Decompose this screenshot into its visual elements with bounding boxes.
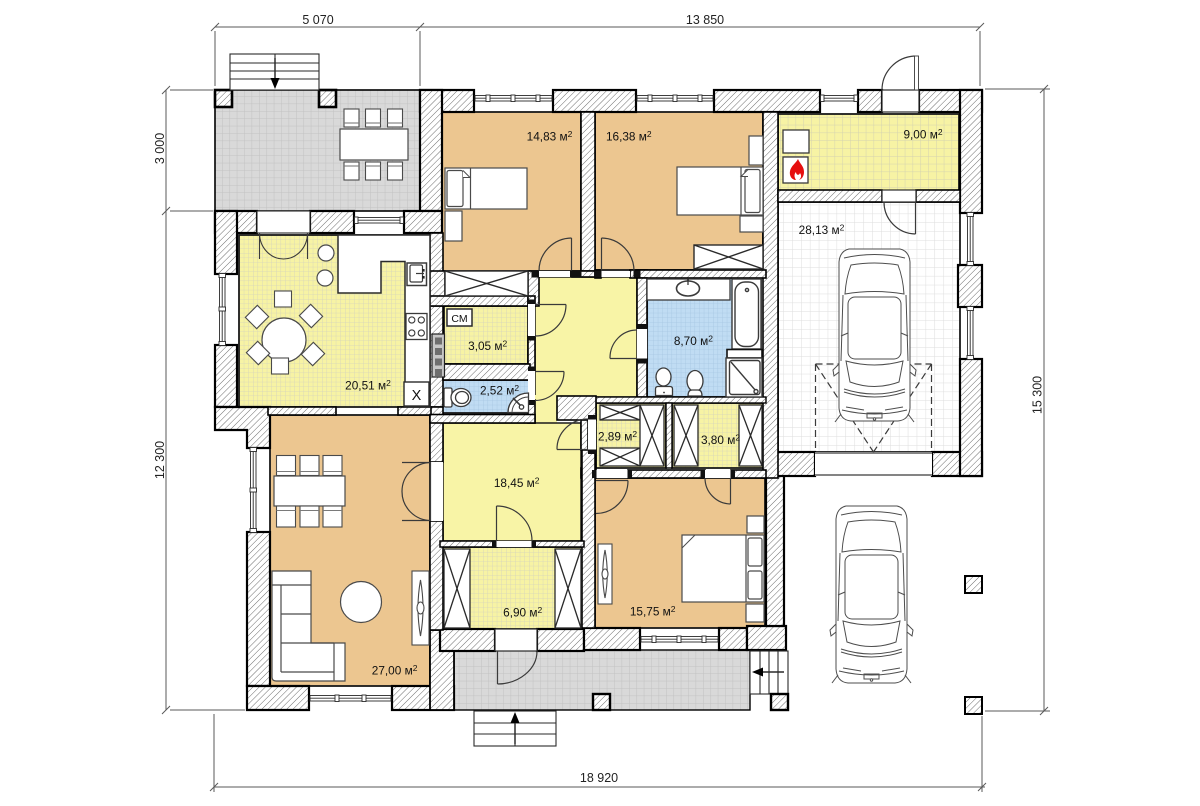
svg-text:9,00 м2: 9,00 м2: [903, 127, 942, 142]
svg-text:2,89 м2: 2,89 м2: [598, 429, 637, 444]
svg-text:27,00 м2: 27,00 м2: [372, 663, 418, 678]
svg-text:15,75 м2: 15,75 м2: [630, 604, 676, 619]
svg-text:18 920: 18 920: [580, 771, 618, 785]
svg-text:18,45 м2: 18,45 м2: [494, 476, 540, 491]
svg-text:13 850: 13 850: [686, 13, 724, 27]
svg-text:5 070: 5 070: [302, 13, 333, 27]
svg-text:12 300: 12 300: [153, 441, 167, 479]
svg-text:14,83 м2: 14,83 м2: [527, 129, 573, 144]
svg-text:X: X: [412, 388, 422, 404]
svg-text:6,90 м2: 6,90 м2: [503, 605, 542, 620]
svg-text:3,05 м2: 3,05 м2: [468, 339, 507, 354]
svg-text:3 000: 3 000: [153, 133, 167, 164]
svg-text:16,38 м2: 16,38 м2: [606, 129, 652, 144]
svg-text:15 300: 15 300: [1031, 376, 1045, 414]
svg-text:28,13 м2: 28,13 м2: [799, 223, 845, 238]
svg-text:2,52 м2: 2,52 м2: [480, 383, 519, 398]
svg-text:СМ: СМ: [451, 313, 467, 325]
svg-text:20,51 м2: 20,51 м2: [345, 378, 391, 393]
svg-text:3,80 м2: 3,80 м2: [701, 433, 740, 448]
svg-text:8,70 м2: 8,70 м2: [674, 334, 713, 349]
